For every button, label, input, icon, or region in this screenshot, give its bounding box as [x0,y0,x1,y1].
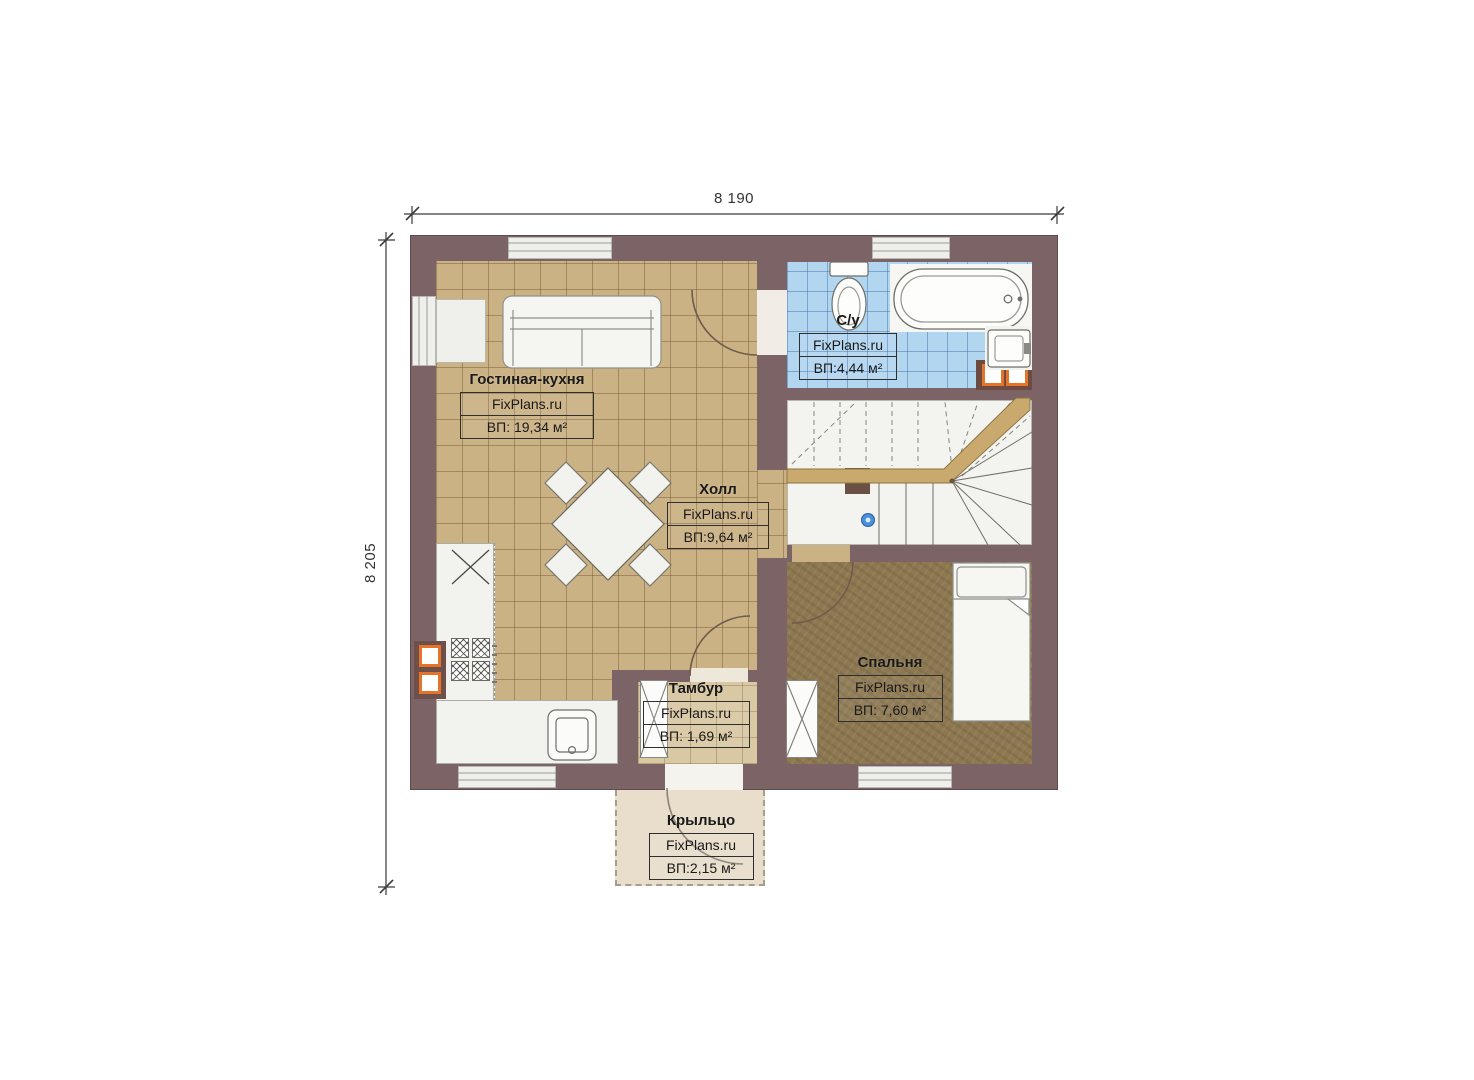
brand-label: FixPlans.ru [644,702,749,724]
stove-knobs-icon [492,641,497,683]
label-box: FixPlans.ru ВП:2,15 м² [649,833,754,880]
room-label-tambour: Тамбур FixPlans.ru ВП: 1,69 м² [640,681,752,748]
room-name: Крыльцо [667,813,735,830]
window-left-sill [436,299,486,363]
stove-burner-icon [472,638,490,658]
stove-burner-icon [472,661,490,681]
vent-icon [419,672,441,694]
entry-door-opening [665,764,743,790]
floor-plan-page: 8 190 8 205 Гостиная-кухня FixPlans.ru В… [0,0,1474,1080]
room-name: Тамбур [669,681,723,698]
room-label-bathroom: С/у FixPlans.ru ВП:4,44 м² [798,313,898,380]
brand-label: FixPlans.ru [800,334,896,356]
kitchen-counter-bottom [436,700,618,764]
wall-segment [757,558,787,764]
area-label: ВП: 1,69 м² [644,724,749,747]
staircase-area [787,400,1032,545]
brand-label: FixPlans.ru [668,503,768,525]
window-bottom-bedroom [858,766,952,788]
bedroom-door-opening [792,545,850,562]
room-name: Гостиная-кухня [470,372,585,389]
label-box: FixPlans.ru ВП: 19,34 м² [460,392,594,439]
label-box: FixPlans.ru ВП:9,64 м² [667,502,769,549]
stove-burner-icon [451,661,469,681]
room-label-hall: Холл FixPlans.ru ВП:9,64 м² [664,482,772,549]
brand-label: FixPlans.ru [839,676,942,698]
label-box: FixPlans.ru ВП: 7,60 м² [838,675,943,722]
area-label: ВП:2,15 м² [650,856,753,879]
wall-segment [757,355,787,470]
brand-label: FixPlans.ru [650,834,753,856]
window-left [412,296,436,366]
area-label: ВП: 7,60 м² [839,698,942,721]
closet-bedroom [786,680,818,758]
window-top-living [508,237,612,259]
room-name: Холл [699,482,737,499]
room-label-bedroom: Спальня FixPlans.ru ВП: 7,60 м² [835,655,945,722]
dimension-height: 8 205 [362,518,380,608]
window-bottom-kitchen [458,766,556,788]
room-label-living: Гостиная-кухня FixPlans.ru ВП: 19,34 м² [452,372,602,439]
wall-pier [845,468,870,494]
label-box: FixPlans.ru ВП:4,44 м² [799,333,897,380]
brand-label: FixPlans.ru [461,393,593,415]
room-label-porch: Крыльцо FixPlans.ru ВП:2,15 м² [645,813,757,880]
room-name: С/у [836,313,859,330]
stove-burner-icon [451,638,469,658]
wall-segment [850,545,1032,562]
dimension-width: 8 190 [684,190,784,207]
vent-icon [419,645,441,667]
bathroom-door-opening [757,290,787,355]
area-label: ВП:9,64 м² [668,525,768,548]
vent-icon [982,364,1004,386]
label-box: FixPlans.ru ВП: 1,69 м² [643,701,750,748]
wall-segment [757,261,787,290]
room-name: Спальня [858,655,923,672]
area-label: ВП:4,44 м² [800,356,896,379]
area-label: ВП: 19,34 м² [461,415,593,438]
vent-icon [1006,364,1028,386]
window-top-bathroom [872,237,950,259]
